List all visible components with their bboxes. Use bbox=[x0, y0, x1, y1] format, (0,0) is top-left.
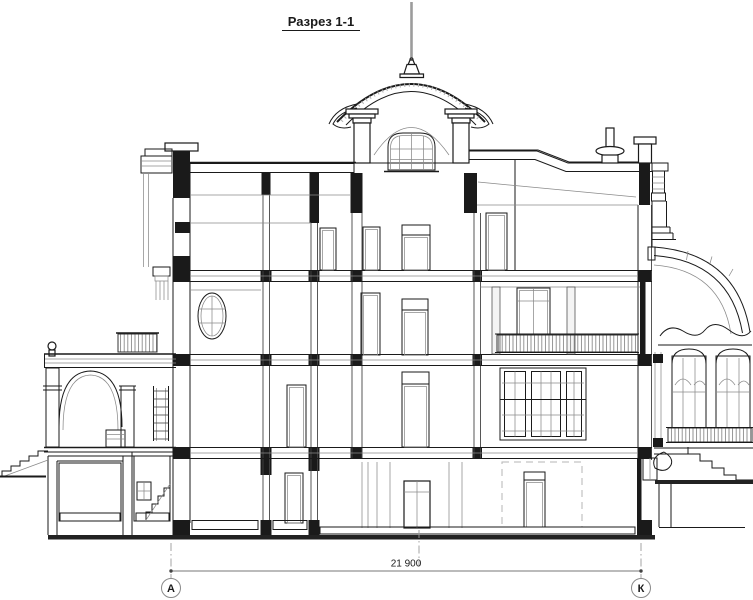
conservatory-windows bbox=[672, 356, 750, 428]
wall-ladder bbox=[154, 386, 169, 441]
title-text: Разрез 1-1 bbox=[288, 14, 354, 29]
conservatory-dome bbox=[654, 247, 750, 332]
roof-slabs bbox=[165, 137, 656, 173]
loggia bbox=[481, 287, 641, 354]
first-floor-interior bbox=[287, 368, 586, 447]
porch-balustrade bbox=[118, 334, 157, 352]
section-drawing: Разрез 1-1 bbox=[0, 0, 753, 600]
conservatory-balustrade bbox=[668, 428, 752, 442]
balcony-balustrade bbox=[497, 335, 638, 352]
axis-marker-a: А bbox=[162, 579, 181, 598]
dimension-group: 21 900 А К bbox=[162, 530, 651, 598]
tower bbox=[346, 109, 477, 172]
chimney bbox=[596, 128, 624, 163]
second-floor-interior bbox=[190, 287, 640, 355]
foundation-line bbox=[48, 535, 655, 540]
porch bbox=[43, 333, 176, 452]
porch-arch bbox=[59, 371, 122, 427]
drawing-title: Разрез 1-1 bbox=[282, 14, 360, 31]
glazed-partition bbox=[377, 462, 462, 528]
axis-label-k: К bbox=[638, 583, 645, 595]
basement-left bbox=[48, 452, 173, 535]
console-scroll bbox=[654, 452, 672, 470]
conservatory-steps bbox=[688, 447, 753, 480]
right-cornice bbox=[652, 163, 677, 247]
tower-arched-window bbox=[384, 133, 439, 172]
axis-label-a: А bbox=[167, 583, 175, 595]
conservatory bbox=[648, 247, 753, 528]
entrance-steps bbox=[0, 451, 48, 477]
ground-line-right bbox=[655, 480, 753, 484]
axis-marker-k: К bbox=[632, 579, 651, 598]
dimension-text: 21 900 bbox=[391, 559, 422, 570]
oval-window bbox=[198, 293, 226, 339]
ball-finial bbox=[48, 342, 56, 350]
drawing-sheet: Разрез 1-1 bbox=[0, 0, 753, 600]
triple-window bbox=[500, 368, 586, 440]
attic-interior bbox=[190, 160, 638, 270]
left-facade-trim bbox=[141, 149, 172, 300]
cupola-spire bbox=[400, 2, 424, 78]
